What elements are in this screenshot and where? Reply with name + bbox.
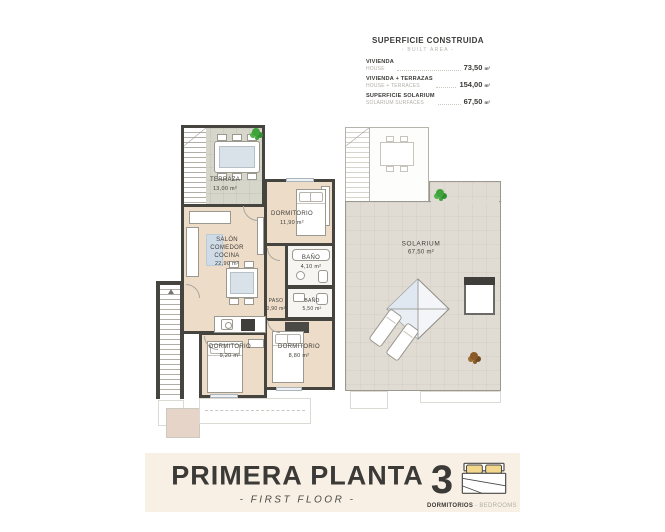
legend-unit: m² bbox=[485, 100, 491, 105]
double-bed-icon bbox=[459, 460, 509, 500]
lower-level-outline bbox=[350, 391, 388, 409]
staircase-icon bbox=[184, 128, 206, 204]
chair-icon bbox=[229, 298, 239, 305]
chair-icon bbox=[217, 173, 227, 180]
tree-icon bbox=[436, 189, 444, 197]
legend-label-en: HOUSE + TERRACES bbox=[366, 83, 433, 89]
legend-value: 154,00 bbox=[459, 80, 482, 89]
legend-subtitle: - BUILT AREA - bbox=[366, 47, 490, 53]
washbasin-icon bbox=[293, 293, 305, 302]
legend-title: SUPERFICIE CONSTRUIDA bbox=[366, 36, 490, 45]
exterior-staircase bbox=[156, 281, 184, 399]
bench-icon bbox=[464, 277, 495, 315]
rug-icon bbox=[206, 234, 223, 266]
room-terraza bbox=[181, 125, 265, 207]
room-bano-1 bbox=[285, 243, 335, 288]
chair-icon bbox=[244, 261, 254, 268]
wardrobe-icon bbox=[248, 339, 264, 348]
dining-table-top bbox=[230, 272, 254, 294]
kitchen-counter bbox=[214, 316, 266, 333]
page-subtitle: - FIRST FLOOR - bbox=[170, 494, 425, 505]
legend-row-vivienda-terrazas: VIVIENDA + TERRAZAS HOUSE + TERRACES 154… bbox=[366, 76, 490, 89]
bedrooms-count: 3 bbox=[431, 462, 453, 498]
bedrooms-label: DORMITORIOS - BEDROOMS bbox=[427, 503, 513, 509]
floor-seam-cover bbox=[431, 200, 499, 203]
dotted-leader bbox=[438, 104, 461, 105]
stair-break-line bbox=[184, 128, 206, 146]
dotted-leader bbox=[397, 70, 461, 71]
chair-icon bbox=[244, 298, 254, 305]
double-bed-icon bbox=[296, 189, 326, 236]
sofa-icon bbox=[186, 227, 199, 277]
legend-row-solarium: SUPERFICIE SOLARIUM SOLARIUM SURFACES 67… bbox=[366, 93, 490, 106]
legend-label-es: VIVIENDA bbox=[366, 59, 394, 65]
chair-icon bbox=[400, 166, 408, 172]
kitchen-sink-icon bbox=[221, 319, 233, 330]
tree-icon bbox=[252, 128, 260, 136]
room-bano-2 bbox=[285, 286, 335, 320]
chair-icon bbox=[400, 136, 408, 142]
porch-slab bbox=[166, 408, 200, 438]
page-title: PRIMERA PLANTA bbox=[170, 460, 425, 491]
chair-icon bbox=[386, 136, 394, 142]
sink-basin bbox=[225, 322, 232, 329]
window-icon bbox=[210, 394, 238, 398]
floor-plan-sheet: SUPERFICIE CONSTRUIDA - BUILT AREA - VIV… bbox=[0, 0, 665, 532]
chair-icon bbox=[232, 173, 242, 180]
terrace-dining-table bbox=[214, 141, 260, 173]
plan-title-block: PRIMERA PLANTA - FIRST FLOOR - bbox=[170, 460, 425, 505]
chair-icon bbox=[217, 134, 227, 141]
bathtub-icon bbox=[292, 249, 330, 261]
legend-unit: m² bbox=[485, 66, 491, 71]
terrace-table-outline bbox=[380, 142, 414, 166]
stair-direction-arrow bbox=[168, 289, 174, 294]
ground-floor-outline bbox=[199, 398, 311, 424]
legend-value: 73,50 bbox=[464, 63, 483, 72]
cooktop-icon bbox=[241, 319, 255, 331]
roof-terrace-outline bbox=[345, 127, 429, 203]
tv-bench-icon bbox=[257, 217, 264, 255]
legend-row-vivienda: VIVIENDA HOUSE 73,50 m² bbox=[366, 59, 490, 72]
sofa-icon bbox=[189, 211, 231, 224]
projection-dashed-line bbox=[205, 410, 305, 411]
chair-icon bbox=[386, 166, 394, 172]
legend-label-en: HOUSE bbox=[366, 66, 394, 72]
chair-icon bbox=[229, 261, 239, 268]
bedrooms-badge: 3 DORMITORIOS - BEDROOMS bbox=[427, 460, 513, 509]
chair-icon bbox=[247, 173, 257, 180]
legend-label-es: SUPERFICIE SOLARIUM bbox=[366, 93, 435, 99]
area-legend: SUPERFICIE CONSTRUIDA - BUILT AREA - VIV… bbox=[366, 36, 490, 110]
window-icon bbox=[286, 178, 314, 182]
shrub-icon bbox=[470, 352, 478, 360]
legend-value: 67,50 bbox=[464, 97, 483, 106]
legend-label-en: SOLARIUM SURFACES bbox=[366, 100, 435, 106]
title-bar: PRIMERA PLANTA - FIRST FLOOR - 3 DORMITO… bbox=[145, 453, 520, 512]
dining-table bbox=[226, 268, 258, 298]
legend-unit: m² bbox=[485, 83, 491, 88]
lower-level-outline bbox=[420, 391, 501, 403]
legend-label-es: VIVIENDA + TERRAZAS bbox=[366, 76, 433, 82]
terrace-table-top bbox=[219, 146, 255, 168]
toilet-icon bbox=[318, 270, 328, 283]
washbasin-icon bbox=[296, 271, 305, 280]
stair-break-line bbox=[346, 128, 369, 146]
double-bed-icon bbox=[272, 331, 304, 383]
chair-icon bbox=[232, 134, 242, 141]
staircase-outline bbox=[346, 128, 370, 202]
room-salon bbox=[181, 204, 267, 334]
dotted-leader bbox=[436, 87, 457, 88]
window-icon bbox=[276, 387, 302, 391]
toilet-icon bbox=[316, 293, 328, 305]
